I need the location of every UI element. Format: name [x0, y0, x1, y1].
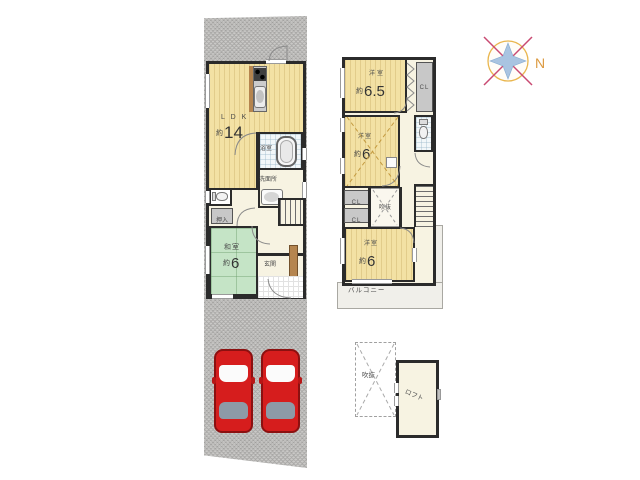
car-1-windshield: [219, 365, 248, 382]
ldk-approx: 約: [216, 130, 223, 137]
bath-label: 浴室: [260, 146, 272, 152]
window-loft-left-a: [394, 383, 399, 393]
car-2: [261, 349, 300, 433]
bedroom2-approx: 約: [354, 151, 361, 158]
bedroom3-area-value: 6: [367, 253, 375, 270]
stairs-1f: [278, 198, 303, 226]
compass-ring: [488, 41, 528, 81]
window-bedroom2-left-b: [340, 158, 345, 174]
window-bedroom1-left: [340, 68, 345, 98]
bedroom2-counter: [386, 157, 397, 168]
bedroom1-area-value: 6.5: [364, 83, 385, 100]
window-bath-right: [302, 148, 307, 160]
window-washitsu-bottom: [212, 294, 233, 299]
window-bedroom3-right: [412, 248, 417, 262]
closet-oshiire-label: 押入: [216, 218, 228, 224]
bedroom1-area: 約6.5: [356, 84, 385, 100]
window-washitsu-left: [205, 246, 210, 274]
backdoor-opening: [266, 59, 286, 64]
void-2f: 吹抜: [371, 188, 399, 227]
void-loft: [355, 342, 396, 417]
bathtub-inner: [280, 140, 293, 163]
car-2-mirror-right: [298, 377, 302, 384]
bedroom3-label: 洋室: [364, 241, 378, 247]
closet-oshiire: 押入: [211, 208, 233, 224]
window-ldk-left: [205, 74, 210, 108]
closet-top-label: CL: [420, 85, 430, 91]
car-1-rear-window: [219, 402, 248, 419]
balcony-label: バルコニー: [348, 288, 385, 295]
closet-a-label: CL: [352, 200, 362, 206]
sink-basin: [256, 90, 264, 103]
ldk-area: 約14: [216, 124, 243, 142]
window-bedroom2-left-a: [340, 118, 345, 132]
washstand-basin: [264, 192, 279, 202]
genkan-porch: [258, 276, 303, 298]
toilet-bowl-2f: [419, 126, 428, 139]
washitsu-area: 約6: [223, 256, 239, 272]
stairs-2f: [414, 184, 433, 227]
closet-top: CL: [416, 62, 433, 112]
window-washroom-right: [302, 182, 307, 198]
closet-b: CL: [344, 208, 369, 223]
toilet-tank-2f: [419, 119, 428, 125]
window-bedroom3-bottom: [352, 279, 392, 284]
bedroom3-approx: 約: [359, 258, 366, 265]
window-bedroom3-left: [340, 238, 345, 264]
car-1-mirror-left: [212, 377, 216, 384]
compass: N: [484, 37, 545, 85]
closet-b-label: CL: [352, 218, 362, 224]
bedroom2-label: 洋室: [358, 134, 372, 140]
genkan-label: 玄関: [264, 262, 276, 268]
closet-a: CL: [344, 190, 369, 205]
room-bedroom3: [344, 227, 415, 282]
bedroom1-approx: 約: [356, 88, 363, 95]
washroom-label: 洗面所: [259, 177, 277, 183]
washitsu-area-value: 6: [231, 255, 239, 272]
void-wall-right: [399, 187, 402, 228]
compass-star-icon: [490, 43, 526, 79]
window-toilet-left: [205, 191, 210, 203]
washitsu-approx: 約: [223, 260, 230, 267]
loft-void-label: 吹抜: [362, 373, 375, 380]
bedroom3-area: 約6: [359, 254, 375, 270]
shoe-cabinet: [289, 245, 298, 278]
window-loft-left-b: [394, 396, 399, 406]
ldk-label: L D K: [221, 114, 248, 121]
bedroom1-label: 洋室: [369, 71, 385, 77]
car-1-mirror-right: [251, 377, 255, 384]
bedroom2-area-value: 6: [362, 146, 370, 163]
stove-icon: [254, 68, 266, 81]
compass-north-label: N: [535, 55, 545, 71]
car-1: [214, 349, 253, 433]
plan-annotations: N: [0, 0, 640, 480]
car-2-windshield: [266, 365, 295, 382]
car-2-mirror-left: [259, 377, 263, 384]
washitsu-label: 和室: [224, 244, 240, 251]
void-2f-label: 吹抜: [379, 205, 391, 211]
compass-cross: [484, 37, 532, 85]
window-loft-right: [437, 389, 441, 400]
toilet-bowl-1f: [216, 192, 228, 201]
ldk-area-value: 14: [224, 123, 243, 142]
floor-plan-canvas: 押入 CL CL C: [0, 0, 640, 480]
car-2-rear-window: [266, 402, 295, 419]
bedroom2-area: 約6: [354, 147, 370, 163]
